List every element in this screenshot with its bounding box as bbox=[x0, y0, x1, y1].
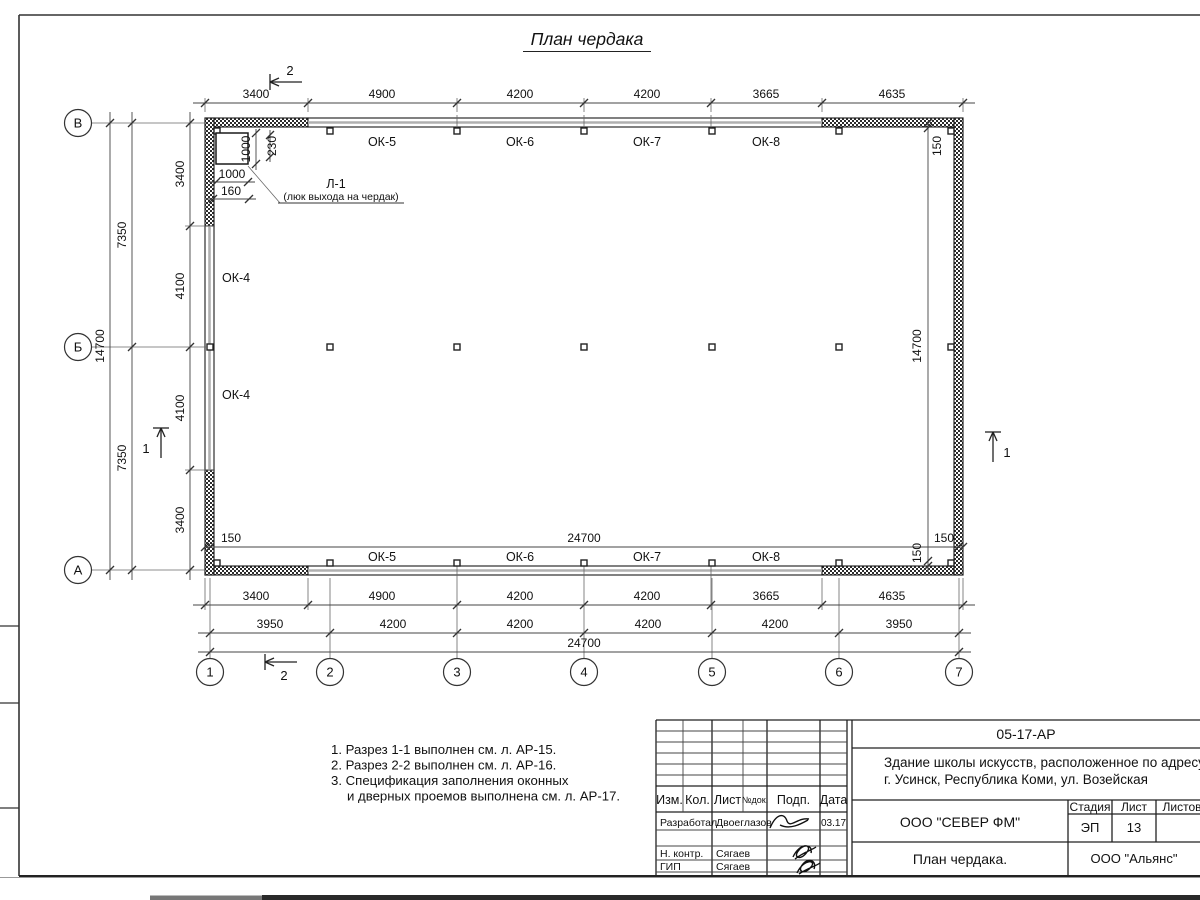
axis-col-5: 5 bbox=[708, 665, 715, 680]
dim-bot2-1: 3950 bbox=[257, 617, 284, 631]
scan-edge-strip-dark bbox=[262, 895, 1200, 900]
sheet-title: План чердака bbox=[531, 29, 644, 49]
note-1: 1. Разрез 1-1 выполнен см. л. АР-15. bbox=[331, 742, 556, 757]
dim-left-3: 4100 bbox=[173, 394, 187, 421]
dims-left: 3400 4100 4100 3400 7350 7350 14700 bbox=[92, 112, 214, 580]
org-name: ООО "СЕВЕР ФМ" bbox=[900, 814, 1020, 830]
project-line-2: г. Усинск, Республика Коми, ул. Возейска… bbox=[884, 772, 1148, 787]
note-3-cont: и дверных проемов выполнена см. л. АР-17… bbox=[347, 789, 620, 804]
axis-col-2: 2 bbox=[326, 665, 333, 680]
dim-top-3: 4200 bbox=[507, 87, 534, 101]
row-developed-role: Разработал bbox=[660, 817, 717, 829]
dim-inner-bot-150: 150 bbox=[910, 543, 924, 563]
dim-bot2-2: 4200 bbox=[380, 617, 407, 631]
dim-bot2-6: 3950 bbox=[886, 617, 913, 631]
row-ncontr-name: Сягаев bbox=[716, 848, 751, 860]
section-2-top-label: 2 bbox=[286, 63, 293, 78]
row-gip-role: ГИП bbox=[660, 861, 681, 873]
window-top-ok8: ОК-8 bbox=[752, 135, 780, 149]
section-2-bottom-label: 2 bbox=[280, 668, 287, 683]
project-line-1: Здание школы искусств, расположенное по … bbox=[884, 755, 1200, 770]
sheet-title-group: План чердака bbox=[523, 29, 651, 52]
hatch-sublabel: (люк выхода на чердак) bbox=[283, 191, 398, 203]
contractor-name: ООО "Альянс" bbox=[1091, 851, 1178, 866]
axis-col-1: 1 bbox=[206, 665, 213, 680]
axis-row-А: А bbox=[74, 563, 83, 578]
col-podp: Подп. bbox=[777, 793, 810, 807]
dim-bot1-6: 4635 bbox=[879, 589, 906, 603]
hatch-dim-1000-h: 1000 bbox=[219, 167, 246, 181]
title-block: 05-17-АР Здание школы искусств, располож… bbox=[656, 720, 1200, 876]
window-left-ok4-upper: ОК-4 bbox=[222, 271, 250, 285]
window-bot-ok6: ОК-6 bbox=[506, 550, 534, 564]
stage-value: ЭП bbox=[1081, 820, 1100, 835]
dim-bot2-3: 4200 bbox=[507, 617, 534, 631]
dim-inner-24700: 24700 bbox=[567, 531, 601, 545]
dim-bot1-2: 4900 bbox=[369, 589, 396, 603]
hatch-dim-1000-v: 1000 bbox=[239, 135, 253, 162]
axis-row-В: В bbox=[74, 116, 83, 131]
dim-bot1-3: 4200 bbox=[507, 589, 534, 603]
section-1-right-label: 1 bbox=[1003, 445, 1010, 460]
dim-bot1-5: 3665 bbox=[753, 589, 780, 603]
dim-left-4: 3400 bbox=[173, 506, 187, 533]
dim-left-2: 4100 bbox=[173, 272, 187, 299]
dim-top-2: 4900 bbox=[369, 87, 396, 101]
dim-top-4: 4200 bbox=[634, 87, 661, 101]
dim-bot2-4: 4200 bbox=[635, 617, 662, 631]
sheet-header: Лист bbox=[1121, 800, 1148, 814]
note-3: 3. Спецификация заполнения оконных bbox=[331, 773, 569, 788]
notes: 1. Разрез 1-1 выполнен см. л. АР-15. 2. … bbox=[331, 742, 620, 804]
dims-top: 3400 4900 4200 4200 3665 4635 bbox=[193, 87, 975, 112]
window-bot-ok5: ОК-5 bbox=[368, 550, 396, 564]
window-left-ok4-lower: ОК-4 bbox=[222, 388, 250, 402]
axis-col-4: 4 bbox=[580, 665, 587, 680]
hatch-label: Л-1 bbox=[326, 177, 345, 191]
col-kol: Кол. bbox=[685, 793, 710, 807]
dim-inner-right-150: 150 bbox=[934, 531, 954, 545]
dim-bot-total: 24700 bbox=[567, 636, 601, 650]
window-top-ok5: ОК-5 bbox=[368, 135, 396, 149]
row-ncontr-role: Н. контр. bbox=[660, 848, 703, 860]
dim-left-mid-1: 7350 bbox=[115, 221, 129, 248]
sheet-number: 13 bbox=[1127, 820, 1141, 835]
dim-bot1-4: 4200 bbox=[634, 589, 661, 603]
window-bot-ok7: ОК-7 bbox=[633, 550, 661, 564]
axis-col-6: 6 bbox=[835, 665, 842, 680]
signature-developed bbox=[770, 816, 809, 828]
dim-top-1: 3400 bbox=[243, 87, 270, 101]
col-ndoc: №док. bbox=[742, 795, 768, 805]
hatch-dim-230: 230 bbox=[265, 136, 279, 156]
doc-code: 05-17-АР bbox=[996, 726, 1055, 742]
drawing-name: План чердака. bbox=[913, 851, 1007, 867]
axis-col-3: 3 bbox=[453, 665, 460, 680]
section-1-left-label: 1 bbox=[142, 441, 149, 456]
stage-header: Стадия bbox=[1070, 800, 1111, 814]
dim-left-mid-2: 7350 bbox=[115, 444, 129, 471]
note-2: 2. Разрез 2-2 выполнен см. л. АР-16. bbox=[331, 758, 556, 773]
axis-col-7: 7 bbox=[955, 665, 962, 680]
dim-top-5: 3665 bbox=[753, 87, 780, 101]
signature-ncontr bbox=[793, 846, 816, 859]
dim-top-6: 4635 bbox=[879, 87, 906, 101]
window-top-ok7: ОК-7 bbox=[633, 135, 661, 149]
dims-bottom: 3400 4900 4200 4200 3665 4635 3950 4200 … bbox=[193, 578, 975, 658]
sheets-header: Листов bbox=[1163, 800, 1200, 814]
attic-plan-sheet: План чердака 3400 bbox=[0, 0, 1200, 900]
dim-inner-14700: 14700 bbox=[910, 329, 924, 363]
dim-left-1: 3400 bbox=[173, 160, 187, 187]
row-developed-date: 03.17 bbox=[821, 818, 846, 829]
dim-left-total: 14700 bbox=[93, 329, 107, 363]
col-list: Лист bbox=[714, 793, 741, 807]
dim-bot1-1: 3400 bbox=[243, 589, 270, 603]
col-data: Дата bbox=[820, 793, 848, 807]
row-gip-name: Сягаев bbox=[716, 861, 751, 873]
row-developed-name: Двоеглазов bbox=[716, 817, 772, 829]
dim-inner-top-150: 150 bbox=[930, 136, 944, 156]
window-top-ok6: ОК-6 bbox=[506, 135, 534, 149]
axis-row-Б: Б bbox=[74, 340, 83, 355]
window-bot-ok8: ОК-8 bbox=[752, 550, 780, 564]
hatch-dim-160: 160 bbox=[221, 184, 241, 198]
dim-inner-left-150: 150 bbox=[221, 531, 241, 545]
col-izm: Изм. bbox=[656, 793, 683, 807]
dim-bot2-5: 4200 bbox=[762, 617, 789, 631]
